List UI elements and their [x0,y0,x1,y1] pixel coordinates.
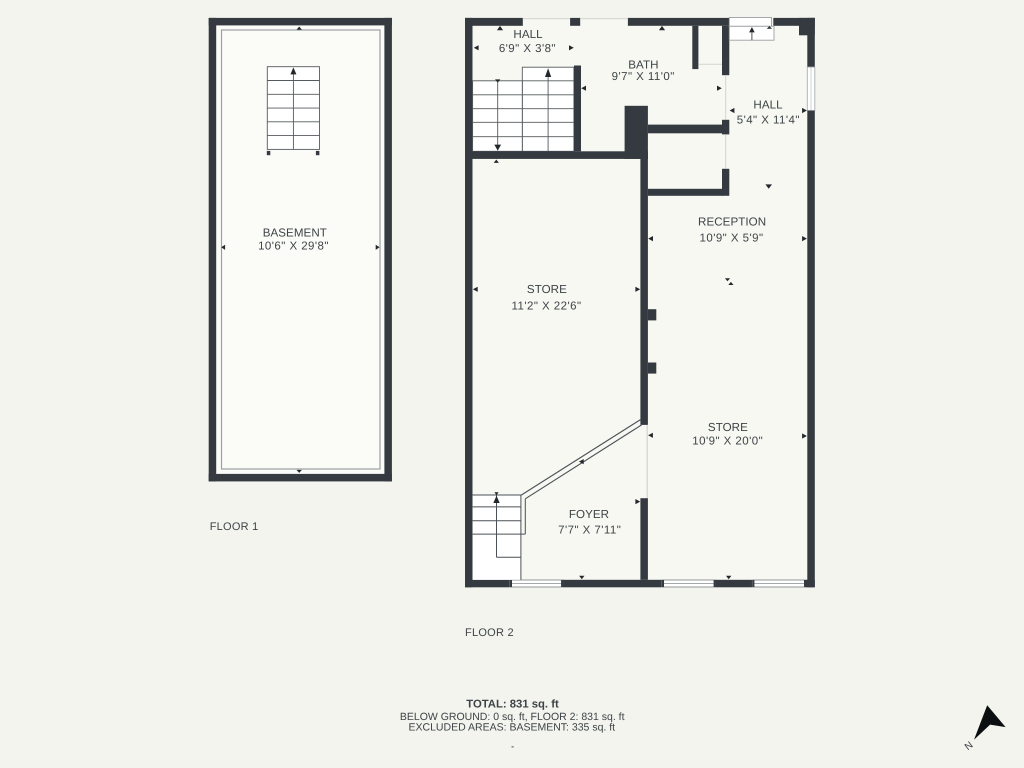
svg-text:10'9" X 5'9": 10'9" X 5'9" [700,233,764,245]
svg-text:FLOOR 1: FLOOR 1 [210,521,259,533]
svg-text:EXCLUDED AREAS: BASEMENT: 335: EXCLUDED AREAS: BASEMENT: 335 sq. ft [409,722,616,734]
svg-text:HALL: HALL [753,98,783,111]
svg-text:9'7" X 11'0": 9'7" X 11'0" [612,71,675,83]
svg-text:STORE: STORE [708,421,748,434]
svg-text:BATH: BATH [628,59,658,72]
svg-text:FLOOR 2: FLOOR 2 [465,627,514,639]
svg-text:10'9" X 20'0": 10'9" X 20'0" [692,436,763,448]
svg-text:STORE: STORE [527,283,567,296]
svg-text:BASEMENT: BASEMENT [263,227,327,240]
svg-text:5'4" X 11'4": 5'4" X 11'4" [737,115,800,127]
svg-text:6'9" X 3'8": 6'9" X 3'8" [499,43,556,55]
svg-text:HALL: HALL [513,28,543,41]
svg-text:7'7" X 7'11": 7'7" X 7'11" [558,524,621,536]
svg-text:11'2" X 22'6": 11'2" X 22'6" [512,301,582,313]
svg-text:RECEPTION: RECEPTION [698,215,766,228]
svg-text:10'6" X 29'8": 10'6" X 29'8" [258,240,329,252]
svg-text:FOYER: FOYER [569,508,609,521]
svg-text:TOTAL: 831 sq. ft: TOTAL: 831 sq. ft [466,699,559,711]
